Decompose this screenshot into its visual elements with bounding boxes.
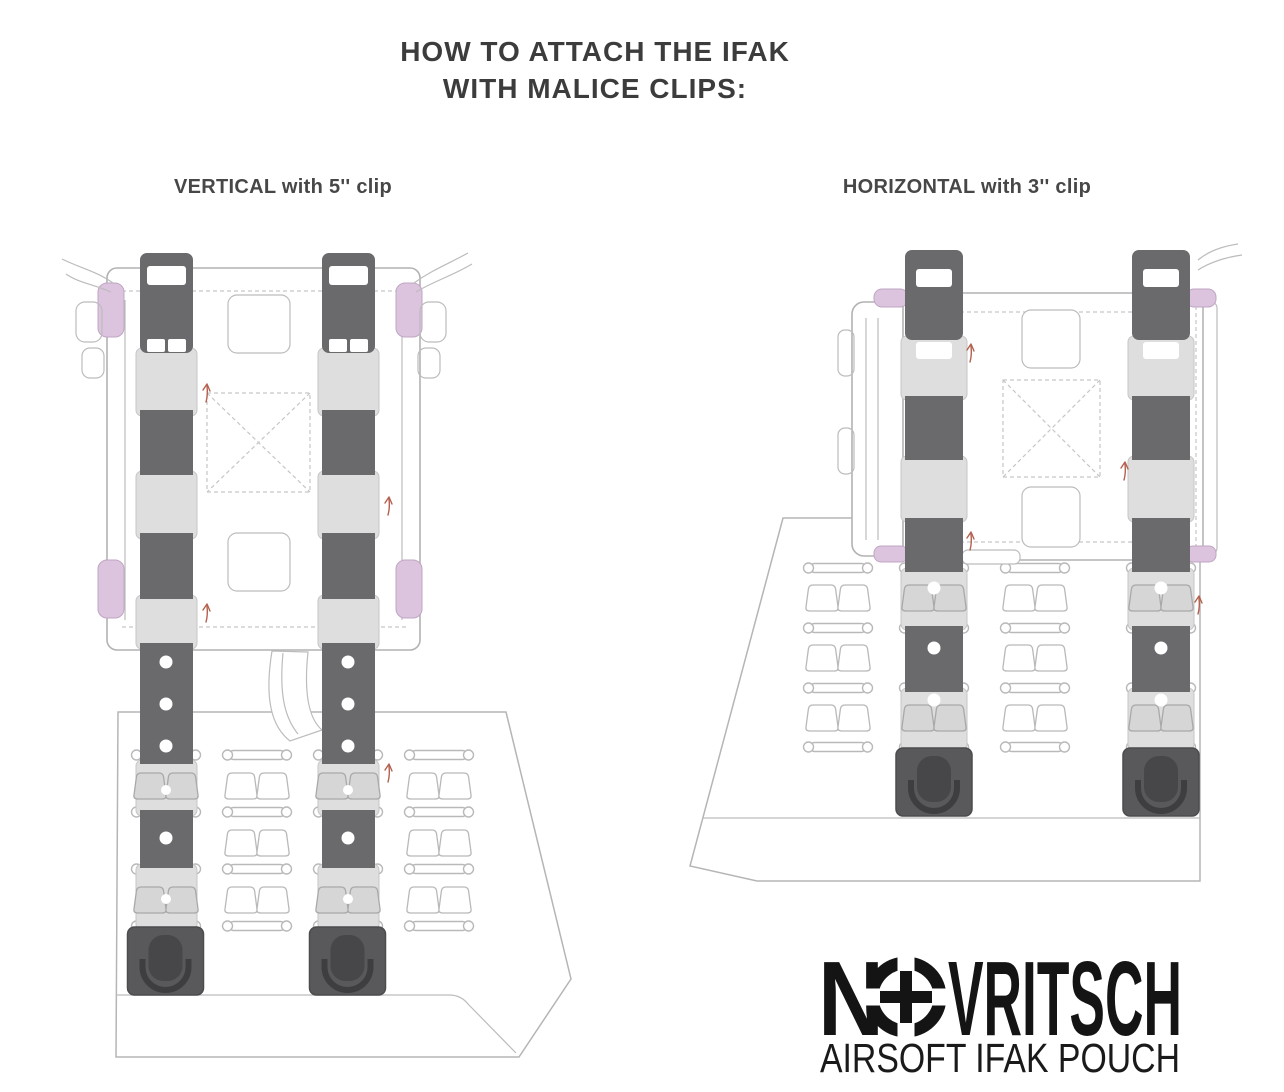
side-tab bbox=[82, 348, 104, 378]
novritsch-logo: N VRITSCH AIRSOFT IFAK POUCH bbox=[818, 940, 1182, 1081]
clip-lock-end bbox=[896, 748, 972, 816]
pouch-top-window bbox=[1022, 310, 1080, 368]
malice-clip-3in-left bbox=[901, 250, 967, 750]
clip-lock-end bbox=[1123, 748, 1199, 816]
elastic-binding bbox=[874, 546, 908, 562]
elastic-binding bbox=[874, 289, 908, 307]
diagram-canvas: N VRITSCH AIRSOFT IFAK POUCH bbox=[0, 0, 1284, 1092]
drawstring-cords bbox=[1198, 244, 1242, 270]
side-tab bbox=[420, 302, 446, 342]
malice-clip-3in-right bbox=[1128, 250, 1194, 750]
elastic-binding bbox=[1186, 546, 1216, 562]
elastic-binding bbox=[396, 560, 422, 618]
malice-clip-5in-left bbox=[136, 253, 197, 930]
clip-lock-end bbox=[128, 927, 204, 995]
clip-lock-end bbox=[310, 927, 386, 995]
pouch-bottom-window bbox=[1022, 487, 1080, 547]
pouch-top-window bbox=[228, 295, 290, 353]
clip-slot bbox=[147, 266, 186, 285]
clip-slot bbox=[916, 269, 952, 287]
logo-subtitle: AIRSOFT IFAK POUCH bbox=[820, 1035, 1180, 1081]
clip-slot bbox=[1143, 269, 1179, 287]
elastic-binding bbox=[98, 560, 124, 618]
horizontal-diagram bbox=[690, 244, 1242, 881]
clasp-tab bbox=[962, 550, 1020, 564]
pouch-lid-flap bbox=[852, 302, 906, 556]
clip-slot bbox=[329, 266, 368, 285]
side-tab bbox=[418, 348, 440, 378]
pouch-bottom-window bbox=[228, 533, 290, 591]
elastic-binding bbox=[1186, 289, 1216, 307]
clip-slot bbox=[1143, 342, 1179, 359]
instruction-sheet: HOW TO ATTACH THE IFAK WITH MALICE CLIPS… bbox=[0, 0, 1284, 1092]
clip-slot bbox=[916, 342, 952, 359]
malice-clip-5in-right bbox=[318, 253, 379, 930]
vertical-diagram bbox=[62, 253, 571, 1057]
ifak-pouch-vertical bbox=[62, 253, 472, 741]
